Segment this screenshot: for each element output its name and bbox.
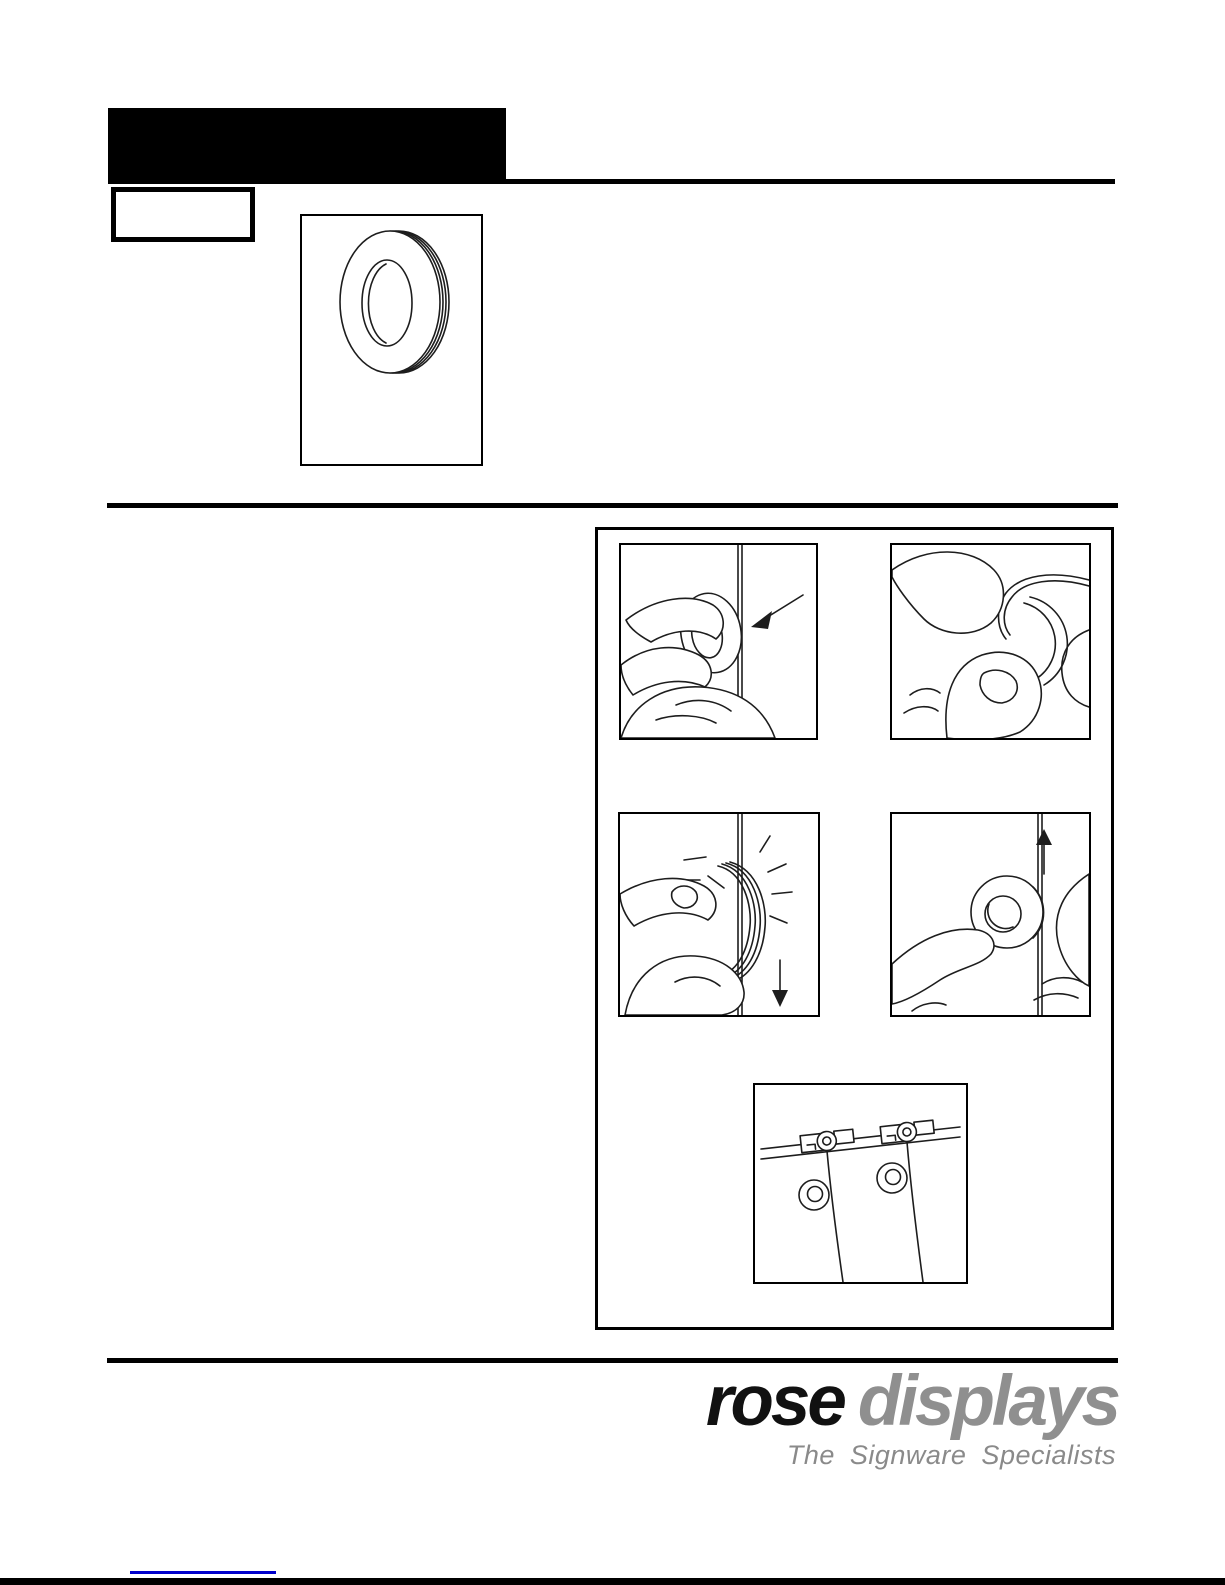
step-3-illustration (620, 814, 818, 1015)
logo-red-slash-icon (690, 1362, 705, 1425)
title-bar (108, 108, 506, 184)
step-4-illustration (892, 814, 1089, 1015)
part-number-box (111, 187, 255, 242)
logo-word-rose: rose (706, 1366, 844, 1437)
instructions-panel (595, 527, 1114, 1330)
step-2-image-frame (890, 543, 1091, 740)
grommet-image-frame (300, 214, 483, 466)
logo-red-slash-icon (844, 1362, 859, 1425)
logo: rose displays The Signware Specialists (740, 1360, 1118, 1472)
logo-wordmark: rose displays (740, 1362, 1118, 1434)
page-bottom-rule (0, 1578, 1225, 1585)
header-rule (506, 179, 1115, 184)
result-image-frame (753, 1083, 968, 1284)
footer-link-underline[interactable] (130, 1571, 276, 1574)
step-1-image-frame (619, 543, 818, 740)
logo-tagline: The Signware Specialists (740, 1440, 1118, 1471)
step-1-illustration (621, 545, 816, 738)
logo-word-displays: displays (858, 1366, 1118, 1437)
grommet-illustration (302, 216, 481, 464)
step-3-image-frame (618, 812, 820, 1017)
section-divider-top (107, 503, 1118, 508)
step-4-image-frame (890, 812, 1091, 1017)
step-2-illustration (892, 545, 1089, 738)
document-page: rose displays The Signware Specialists (0, 0, 1225, 1585)
hanging-track-illustration (755, 1085, 966, 1282)
